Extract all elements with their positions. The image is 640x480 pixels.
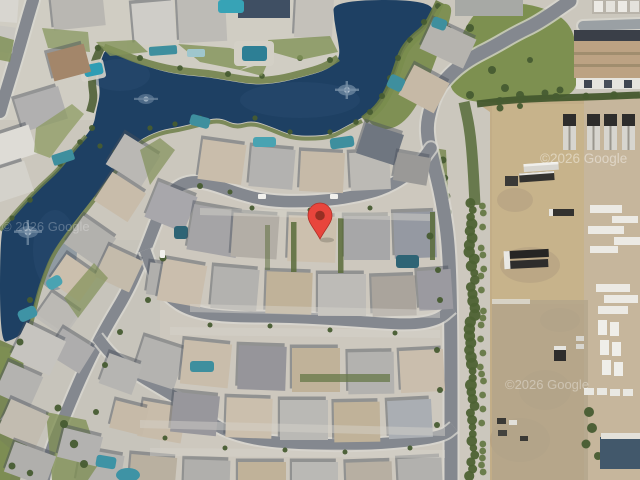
svg-text:©2026 Google: ©2026 Google [540,151,627,166]
svg-text:©2026 Google: ©2026 Google [505,377,589,392]
svg-text:© 2026 Google: © 2026 Google [2,219,90,234]
